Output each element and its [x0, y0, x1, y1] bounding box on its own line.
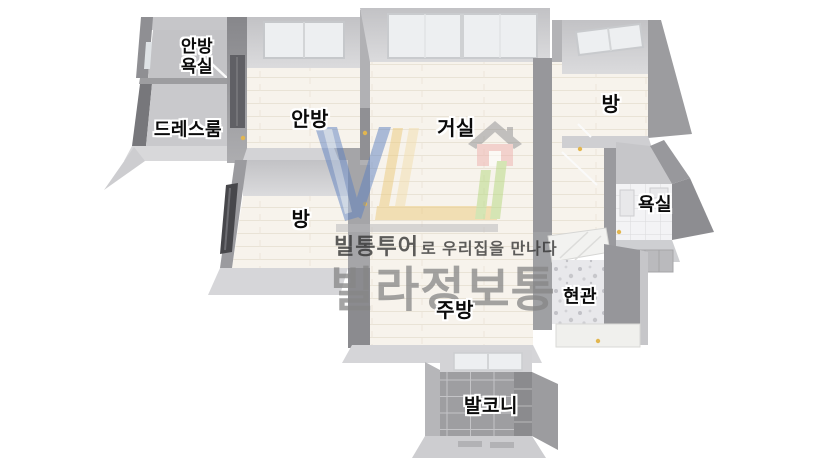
- floor-plan-rendering: [0, 0, 840, 472]
- wall-left-column: [227, 17, 247, 163]
- room-bedroom-left: [208, 160, 348, 295]
- front-door: [556, 324, 640, 347]
- room-master-bathroom: [136, 17, 227, 84]
- room-living-kitchen: [342, 8, 552, 363]
- room-balcony: [412, 350, 558, 458]
- room-dress-room: [104, 84, 227, 190]
- room-bedroom-right: [552, 20, 692, 148]
- logo-underline: [336, 224, 498, 232]
- floor-plan-stage: 빌통투어 로 우리집을 만나다 빌라정보통 안방 욕실 드레스룸 안방 거실 방…: [0, 0, 840, 472]
